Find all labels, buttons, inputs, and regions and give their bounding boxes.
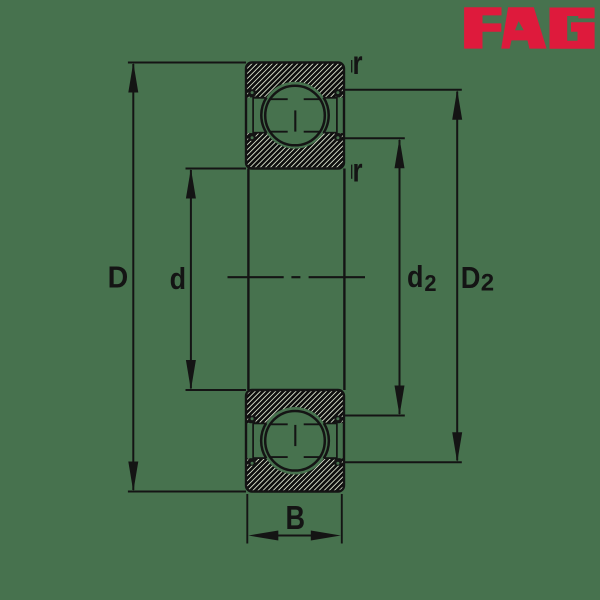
- svg-text:2: 2: [481, 269, 494, 296]
- svg-text:r: r: [353, 45, 363, 82]
- svg-text:B: B: [286, 501, 306, 537]
- svg-text:D: D: [461, 261, 481, 295]
- svg-text:2: 2: [424, 270, 436, 296]
- svg-text:d: d: [407, 260, 423, 294]
- svg-text:D: D: [108, 260, 129, 294]
- svg-text:r: r: [353, 152, 363, 189]
- svg-text:d: d: [170, 262, 186, 296]
